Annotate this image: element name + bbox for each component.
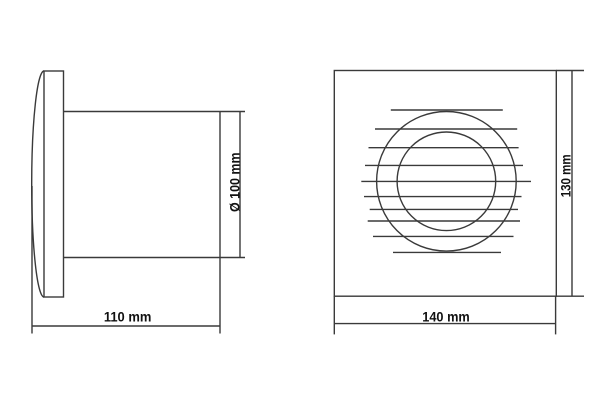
svg-text:130 mm: 130 mm (557, 154, 573, 197)
svg-text:Ø 100 mm: Ø 100 mm (227, 152, 243, 212)
svg-text:110 mm: 110 mm (104, 309, 152, 325)
svg-text:140 mm: 140 mm (422, 309, 470, 325)
